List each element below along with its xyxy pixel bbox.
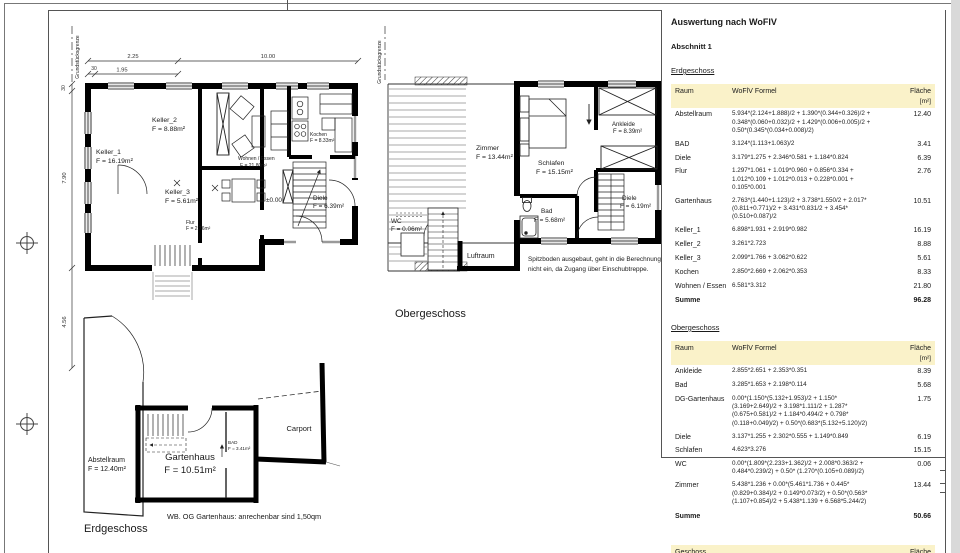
room-labels: Keller_1 F = 16.19m² Keller_2 F = 8.88m²… [96,117,344,232]
room-name: Zimmer [476,145,500,152]
gartenhaus-note: WB. OG Gartenhaus: anrechenbar sind 1,50… [167,512,321,521]
table-row: Schlafen4.623*3.27615.15 [671,444,935,458]
table-header: Raum WoFlV Formel Fläche[m²] [671,84,935,108]
table-row: Wohnen / Essen6.581*3.31221.80 [671,279,935,293]
plan-main-house: Keller_1 F = 16.19m² Keller_2 F = 8.88m²… [84,82,359,300]
room-area: F = 10.51m² [164,465,215,476]
room-name: Diele [622,195,637,202]
cell-flaeche: 6.39 [889,154,931,163]
cell-raum: Diele [675,433,732,442]
cell-raum: Keller_2 [675,240,732,249]
cell-flaeche: 12.40 [889,110,931,135]
cell-formel: 5.438*1.236 + 0.00*(5.461*1.736 + 0.445*… [732,481,889,506]
table-row: WC0.00*(1.809*(2.233+1.362)/2 + 2.008*0.… [671,458,935,479]
cell-formel: 0.00*(1.150*(5.132+1.953)/2 + 1.150*(3.1… [732,395,889,428]
table-row: Diele3.179*1.275 + 2.346*0.581 + 1.184*0… [671,151,935,165]
summe-label: Summe [675,512,732,521]
carport-label: Carport [286,424,312,433]
table-row: Zimmer5.438*1.236 + 0.00*(5.461*1.736 + … [671,479,935,508]
registration-mark [16,413,38,435]
abstellraum-outline [84,316,144,516]
room-area: F = 8.88m² [152,126,186,133]
cell-raum: BAD [675,140,732,149]
cell-flaeche: 8.33 [889,268,931,277]
room-name: WC [391,218,402,225]
report-title: Auswertung nach WoFlV [671,17,935,27]
stairs [146,414,186,452]
room-name: Keller_3 [165,189,190,196]
cell-formel: 2.850*2.669 + 2.062*0.353 [732,268,889,277]
room-area: F = 15.15m² [536,169,574,176]
dim-label: 30 [91,66,97,72]
room-area: F = 16.19m² [96,158,134,165]
table-row: Gartenhaus2.763*(1.440+1.123)/2 + 3.738*… [671,194,935,223]
cell-formel: 6.898*1.931 + 2.919*0.982 [732,226,889,235]
note-line: Spitzboden ausgebaut, geht in die Berech… [528,256,661,263]
report-section: Abschnitt 1 [671,42,935,51]
room-area: F = 5.68m² [534,217,565,224]
cell-flaeche: 8.88 [889,240,931,249]
room-area: F = 12.40m² [88,466,127,473]
table-row: Flur1.297*1.061 + 1.019*0.960 + 0.856*0.… [671,165,935,194]
cell-formel: 3.179*1.275 + 2.346*0.581 + 1.184*0.824 [732,154,889,163]
cell-raum: Ankleide [675,367,732,376]
cell-flaeche: 5.61 [889,254,931,263]
cell-raum: Gartenhaus [675,197,732,222]
room-name: Diele [313,195,328,202]
carport-outline [256,363,340,466]
summe-value: 50.66 [889,512,931,521]
boundary-label: Grundstücksgrenze [75,35,81,79]
cell-formel: 3.285*1.653 + 2.198*0.114 [732,381,889,390]
col-raum: Raum [675,88,732,105]
cell-formel: 0.00*(1.809*(2.233+1.362)/2 + 2.008*0.36… [732,460,889,476]
room-name: Wohnen / Essen [238,156,275,162]
heading-obergeschoss: Obergeschoss [671,323,935,332]
bed [520,96,566,156]
drawing-sheet: 2.25 10.00 30 1.95 30 7.90 4.56 Grundstü… [0,0,960,553]
cell-formel: 3.124*(1.113+1.063)/2 [732,140,889,149]
cell-raum: Diele [675,154,732,163]
cell-formel: 4.623*3.276 [732,446,889,455]
col-raum: Raum [675,345,732,362]
cell-flaeche: 8.39 [889,367,931,376]
cell-raum: Schlafen [675,446,732,455]
level-marker: ±0.00 [266,197,282,204]
room-name: Ankleide [612,122,636,128]
room-name: Keller_2 [152,117,177,124]
room-labels: Abstellraum F = 12.40m² Gartenhaus F = 1… [84,424,321,535]
summe-label: Summe [675,296,732,305]
col-flaeche: Fläche [910,88,931,95]
registration-mark [16,232,38,254]
room-area: F = 2.76m² [186,226,211,232]
room-area: F = 21.80m² [240,163,267,169]
cell-formel: 6.581*3.312 [732,282,889,291]
note-line: nicht ein, da Zugang über Einschubtreppe… [528,266,649,273]
cell-raum: Keller_1 [675,226,732,235]
dim-label: 2.25 [127,54,138,60]
cell-flaeche: 6.19 [889,433,931,442]
cell-formel: 2.855*2.651 + 2.353*0.351 [732,367,889,376]
cell-formel: 1.297*1.061 + 1.019*0.960 + 0.856*0.334 … [732,167,889,192]
plan-title-erdgeschoss: Erdgeschoss [84,523,148,535]
cell-raum: Keller_3 [675,254,732,263]
room-name: Gartenhaus [165,452,215,463]
door-swing [188,408,212,432]
cell-formel: 5.934*(2.124+1.888)/2 + 1.390*(0.344+0.3… [732,110,889,135]
boundary-label: Grundstücksgrenze [377,40,383,84]
col-unit: [m²] [920,355,931,362]
cell-flaeche: 16.19 [889,226,931,235]
cell-raum: Zimmer [675,481,732,506]
heading-erdgeschoss: Erdgeschoss [671,66,935,75]
table-row: Ankleide2.855*2.651 + 2.353*0.3518.39 [671,365,935,379]
table-row: Abstellraum5.934*(2.124+1.888)/2 + 1.390… [671,108,935,137]
dim-label: 10.00 [261,54,276,60]
room-name: BAD [228,440,238,445]
summe-row: Summe96.28 [671,294,935,308]
summary-header: Geschoss Fläche[m²] [671,545,935,553]
room-area: F = 13.44m² [476,154,514,161]
stairwell [428,208,458,270]
cell-raum: WC [675,460,732,476]
cell-flaeche: 2.76 [889,167,931,192]
plan-gartenhaus: Abstellraum F = 12.40m² Gartenhaus F = 1… [84,316,340,535]
room-name: Abstellraum [88,457,125,464]
cell-formel: 3.137*1.255 + 2.302*0.555 + 1.149*0.849 [732,433,889,442]
dim-label: 7.90 [62,172,68,183]
table-row: Diele3.137*1.255 + 2.302*0.555 + 1.149*0… [671,430,935,444]
dim-label: 4.56 [62,316,68,327]
room-area: F = 8.39m² [613,129,642,135]
summe-value: 96.28 [889,296,931,305]
room-name: Schlafen [538,160,565,167]
room-name: Keller_1 [96,149,121,156]
table-row: Keller_23.261*2.7238.88 [671,238,935,252]
roof-hatch [415,77,467,85]
room-area: F = 5.61m² [165,198,199,205]
col-flaeche: Fläche [910,549,931,553]
room-area: F = 3.41m² [228,446,251,451]
table-row: BAD3.124*(1.113+1.063)/23.41 [671,137,935,151]
wofiv-report-panel: Auswertung nach WoFlV Abschnitt 1 Erdges… [661,10,945,458]
col-unit: [m²] [920,98,931,105]
cell-raum: Flur [675,167,732,192]
cell-raum: DG-Gartenhaus [675,395,732,428]
cell-formel: 2.763*(1.440+1.123)/2 + 3.738*1.550/2 + … [732,197,889,222]
table-row: DG-Gartenhaus0.00*(1.150*(5.132+1.953)/2… [671,393,935,430]
room-area: F = 6.39m² [313,203,344,210]
cell-raum: Kochen [675,268,732,277]
cell-flaeche: 5.68 [889,381,931,390]
cell-flaeche: 21.80 [889,282,931,291]
stairs [598,174,624,230]
summe-row: Summe50.66 [671,509,935,523]
cell-formel: 3.261*2.723 [732,240,889,249]
cell-flaeche: 1.75 [889,395,931,428]
col-geschoss: Geschoss [675,549,889,553]
cell-flaeche: 10.51 [889,197,931,222]
table-row: Bad3.285*1.653 + 2.198*0.1145.68 [671,379,935,393]
stairs [153,245,192,300]
room-area: F = 8.33m² [310,138,335,144]
cell-raum: Wohnen / Essen [675,282,732,291]
col-formel: WoFlV Formel [732,345,889,362]
room-name: Bad [541,208,553,215]
col-formel: WoFlV Formel [732,88,889,105]
room-area: F = 6.19m² [620,203,651,210]
col-flaeche: Fläche [910,345,931,352]
table-row: Keller_32.099*1.766 + 3.062*0.6225.61 [671,251,935,265]
cell-flaeche: 0.06 [889,460,931,476]
plan-title-obergeschoss: Obergeschoss [395,308,466,320]
dim-label: 30 [61,85,67,91]
cell-raum: Abstellraum [675,110,732,135]
table-row: Keller_16.898*1.931 + 2.919*0.98216.19 [671,224,935,238]
cell-flaeche: 15.15 [889,446,931,455]
cell-flaeche: 3.41 [889,140,931,149]
room-area: F = 0.06m² [391,226,422,233]
plan-obergeschoss: Zimmer F = 13.44m² Schlafen F = 15.15m² … [388,77,662,320]
cell-raum: Bad [675,381,732,390]
sheet-edge-shadow [951,0,960,553]
table-row: Kochen2.850*2.669 + 2.062*0.3538.33 [671,265,935,279]
table-header: Raum WoFlV Formel Fläche[m²] [671,341,935,365]
cell-formel: 2.099*1.766 + 3.062*0.622 [732,254,889,263]
luftraum-label: Luftraum [467,253,495,260]
cell-flaeche: 13.44 [889,481,931,506]
dim-label: 1.95 [116,68,127,74]
